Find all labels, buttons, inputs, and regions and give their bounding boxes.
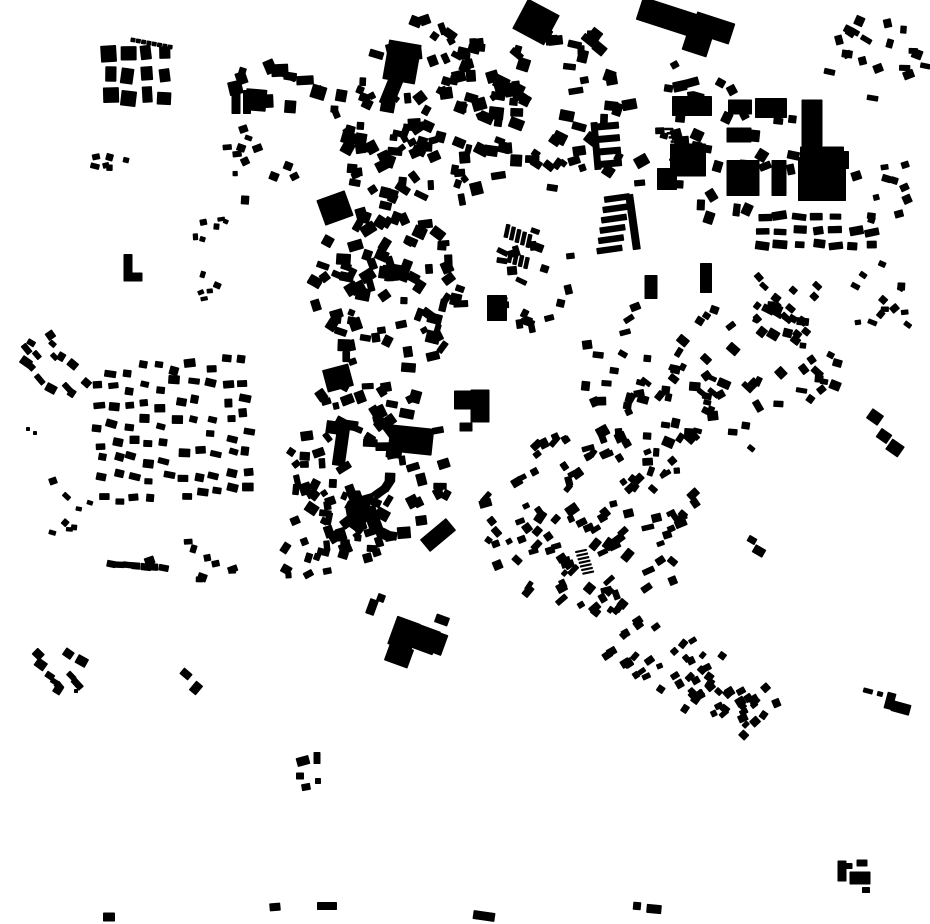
building: [529, 467, 539, 477]
building: [838, 861, 847, 882]
building: [496, 247, 509, 257]
building: [598, 134, 621, 143]
building: [316, 190, 353, 226]
building: [400, 297, 407, 304]
building: [885, 38, 894, 49]
building: [33, 657, 48, 671]
building: [678, 638, 689, 649]
building: [793, 225, 807, 234]
building: [31, 648, 44, 661]
building: [112, 437, 124, 447]
building: [241, 195, 250, 204]
building: [759, 281, 769, 291]
building: [469, 38, 476, 49]
building: [633, 902, 642, 911]
building: [620, 547, 635, 562]
building: [362, 383, 374, 390]
building: [322, 567, 332, 575]
building: [563, 284, 573, 295]
building: [494, 115, 504, 127]
building: [120, 67, 135, 84]
building: [368, 49, 384, 61]
building: [75, 506, 82, 512]
building: [532, 450, 542, 460]
building: [890, 700, 911, 716]
building: [491, 171, 507, 181]
building: [86, 500, 93, 506]
building: [195, 446, 206, 454]
building: [487, 295, 507, 321]
building: [568, 86, 584, 95]
building: [62, 647, 75, 660]
building: [232, 171, 237, 176]
building: [232, 150, 242, 157]
building: [268, 171, 280, 182]
building: [401, 362, 416, 373]
building: [310, 298, 322, 312]
building: [301, 783, 311, 791]
building: [244, 134, 253, 141]
building: [583, 581, 597, 595]
building: [329, 479, 337, 488]
building: [210, 450, 223, 459]
building: [334, 326, 348, 337]
building: [179, 448, 191, 457]
building: [726, 342, 741, 357]
building: [359, 77, 366, 86]
building: [316, 260, 330, 270]
building: [26, 427, 30, 431]
building: [304, 552, 314, 563]
building: [661, 435, 676, 449]
building: [199, 219, 207, 227]
building: [194, 473, 204, 483]
building: [441, 76, 452, 87]
building: [786, 163, 796, 175]
building: [899, 182, 910, 192]
building: [805, 394, 816, 405]
building: [460, 423, 473, 432]
building: [303, 501, 319, 517]
building: [676, 334, 690, 348]
building: [727, 128, 752, 143]
building: [600, 159, 623, 168]
building: [385, 400, 398, 409]
building: [828, 226, 842, 234]
building: [582, 340, 593, 350]
building: [387, 147, 403, 156]
building: [665, 128, 674, 131]
building: [717, 651, 727, 661]
building: [296, 75, 314, 85]
building: [544, 314, 555, 322]
building: [523, 257, 530, 270]
building: [522, 502, 531, 510]
building: [61, 518, 70, 527]
building: [643, 355, 651, 363]
building: [712, 160, 724, 173]
building: [609, 367, 619, 375]
building: [605, 74, 618, 86]
building: [223, 380, 235, 389]
building: [518, 255, 525, 268]
building: [414, 189, 429, 201]
building: [900, 25, 907, 33]
building: [643, 432, 652, 440]
building: [684, 76, 700, 88]
building: [580, 563, 592, 568]
building: [813, 238, 826, 248]
building: [362, 552, 373, 563]
building: [774, 228, 787, 235]
building: [455, 284, 466, 293]
building: [314, 752, 321, 764]
building: [224, 398, 232, 407]
building: [755, 241, 770, 252]
building: [426, 54, 439, 67]
building: [228, 568, 236, 574]
building: [707, 410, 719, 421]
building: [727, 160, 760, 196]
building: [332, 314, 342, 324]
building: [511, 554, 523, 566]
building: [44, 329, 56, 341]
building: [832, 358, 843, 368]
building: [577, 556, 589, 561]
building: [900, 160, 910, 169]
building: [602, 203, 629, 213]
building: [190, 394, 199, 404]
building: [672, 96, 712, 116]
building: [758, 710, 768, 721]
building: [104, 370, 117, 379]
building: [286, 447, 297, 458]
building: [866, 408, 884, 426]
building: [168, 375, 180, 385]
building: [427, 180, 434, 190]
building: [563, 63, 576, 71]
building: [704, 188, 718, 203]
building: [674, 678, 685, 689]
building: [139, 45, 152, 61]
building: [95, 472, 106, 481]
building: [735, 686, 746, 696]
building: [715, 77, 727, 89]
building: [227, 415, 235, 422]
building: [673, 467, 680, 474]
building: [771, 698, 782, 709]
building: [457, 193, 466, 206]
building: [237, 380, 247, 387]
building: [521, 584, 535, 598]
building: [466, 70, 477, 82]
building: [317, 902, 337, 910]
building: [124, 423, 134, 431]
building: [193, 233, 199, 240]
building: [580, 76, 590, 84]
building: [889, 303, 900, 314]
building: [176, 397, 187, 407]
building: [642, 565, 656, 576]
building: [252, 143, 264, 153]
building: [156, 422, 166, 430]
building: [700, 353, 713, 366]
building: [323, 501, 332, 511]
building: [415, 472, 428, 486]
building: [289, 171, 300, 181]
building: [356, 122, 364, 130]
building: [206, 430, 215, 437]
building: [521, 522, 533, 535]
building: [667, 575, 678, 586]
building: [425, 264, 433, 274]
building: [284, 100, 297, 114]
building: [296, 773, 304, 780]
building: [458, 101, 467, 113]
building: [136, 38, 142, 43]
building: [567, 39, 582, 49]
building: [872, 63, 884, 74]
building: [732, 203, 741, 216]
building: [269, 903, 281, 912]
building: [619, 328, 631, 336]
building: [592, 351, 604, 359]
building: [120, 90, 137, 107]
building: [539, 264, 549, 274]
building: [575, 549, 587, 554]
building: [785, 303, 796, 314]
building: [213, 281, 222, 290]
building: [878, 260, 887, 268]
building: [576, 600, 585, 609]
building: [601, 214, 628, 224]
building: [700, 263, 712, 293]
building: [816, 384, 827, 395]
building: [806, 354, 817, 365]
building: [222, 144, 232, 150]
building: [555, 593, 568, 606]
building: [714, 687, 724, 696]
building: [183, 358, 196, 368]
building: [654, 555, 666, 566]
building: [367, 184, 378, 195]
building: [698, 651, 706, 660]
building: [596, 397, 606, 406]
building: [289, 515, 301, 526]
building: [144, 478, 152, 484]
building: [48, 529, 56, 536]
building: [377, 289, 391, 303]
building: [406, 462, 421, 473]
building: [880, 164, 889, 171]
building: [320, 489, 329, 498]
building: [100, 45, 117, 63]
building: [901, 309, 909, 315]
building: [340, 393, 355, 407]
building: [33, 431, 37, 435]
building: [621, 98, 637, 111]
building: [434, 613, 450, 626]
building: [876, 691, 883, 697]
building: [795, 241, 805, 248]
building: [66, 527, 73, 532]
building: [512, 89, 521, 101]
building: [640, 582, 653, 594]
building: [399, 408, 415, 420]
building: [291, 459, 301, 469]
building: [801, 326, 812, 336]
building: [347, 308, 356, 316]
building: [766, 327, 781, 341]
building: [157, 457, 169, 466]
building: [645, 275, 658, 299]
building: [359, 334, 371, 342]
building: [226, 435, 238, 444]
building: [238, 393, 251, 403]
building-combs: [130, 37, 681, 574]
building: [300, 430, 314, 441]
building: [240, 446, 249, 456]
building: [240, 156, 251, 167]
building: [213, 223, 219, 230]
building: [514, 229, 521, 244]
building: [853, 15, 866, 28]
building: [122, 369, 131, 377]
building: [505, 537, 513, 545]
building: [335, 89, 348, 103]
building: [397, 526, 412, 539]
building: [609, 500, 618, 508]
building: [48, 476, 58, 485]
building: [509, 226, 516, 241]
building: [243, 427, 255, 435]
building: [236, 354, 245, 363]
building: [354, 140, 366, 154]
building: [582, 570, 594, 575]
building: [189, 681, 204, 696]
building: [300, 461, 309, 468]
building: [657, 168, 677, 190]
building: [453, 179, 462, 189]
building: [318, 458, 325, 469]
building: [772, 239, 787, 249]
building: [140, 380, 150, 388]
building: [440, 52, 451, 64]
building: [90, 162, 100, 170]
building: [581, 381, 591, 391]
building: [451, 69, 467, 84]
building: [437, 457, 451, 470]
building: [668, 373, 680, 385]
building: [140, 66, 153, 81]
building: [812, 281, 823, 292]
building: [124, 273, 143, 282]
building: [670, 647, 680, 657]
building: [154, 361, 163, 368]
building: [115, 498, 124, 504]
building: [802, 100, 823, 147]
building: [788, 285, 798, 295]
building: [862, 887, 870, 893]
building: [296, 755, 311, 767]
building: [798, 363, 810, 376]
building: [154, 404, 165, 413]
building: [128, 472, 141, 481]
building: [515, 517, 526, 526]
building: [755, 325, 768, 338]
footprint-svg: [0, 0, 930, 924]
building: [114, 452, 125, 462]
building: [189, 544, 197, 554]
building: [641, 523, 655, 531]
building: [412, 90, 428, 106]
building: [50, 352, 59, 361]
building: [550, 513, 561, 524]
building: [222, 354, 232, 362]
building: [531, 525, 543, 537]
building: [188, 377, 200, 384]
building: [773, 117, 783, 125]
building: [752, 399, 764, 413]
building: [66, 358, 79, 371]
building: [646, 904, 662, 914]
building: [385, 445, 402, 459]
building: [601, 380, 612, 387]
building: [740, 202, 754, 217]
building: [105, 418, 118, 429]
building: [322, 363, 354, 392]
building: [395, 320, 407, 330]
building: [629, 301, 641, 312]
building: [579, 559, 591, 564]
building: [108, 402, 120, 412]
map-canvas: [0, 0, 930, 924]
building: [351, 167, 363, 177]
building: [688, 636, 698, 645]
building: [653, 448, 660, 457]
building: [598, 234, 625, 244]
building: [490, 526, 502, 538]
building: [383, 494, 394, 507]
building: [138, 360, 148, 369]
building: [564, 502, 580, 517]
building: [34, 373, 46, 386]
building: [74, 689, 78, 693]
building: [850, 170, 862, 182]
building: [163, 470, 176, 479]
building: [546, 184, 558, 192]
building: [773, 400, 783, 407]
building: [114, 468, 125, 478]
building: [96, 443, 106, 450]
building: [377, 326, 386, 334]
building: [572, 145, 586, 156]
building: [782, 328, 793, 339]
building: [211, 560, 220, 568]
building: [491, 559, 503, 571]
building: [625, 194, 641, 251]
building: [441, 240, 450, 247]
building: [207, 471, 219, 480]
building: [670, 60, 680, 70]
building: [689, 382, 701, 392]
building: [197, 488, 209, 497]
building: [837, 151, 849, 169]
building: [702, 210, 715, 225]
building: [867, 318, 878, 326]
building: [636, 394, 649, 405]
building: [139, 414, 150, 423]
